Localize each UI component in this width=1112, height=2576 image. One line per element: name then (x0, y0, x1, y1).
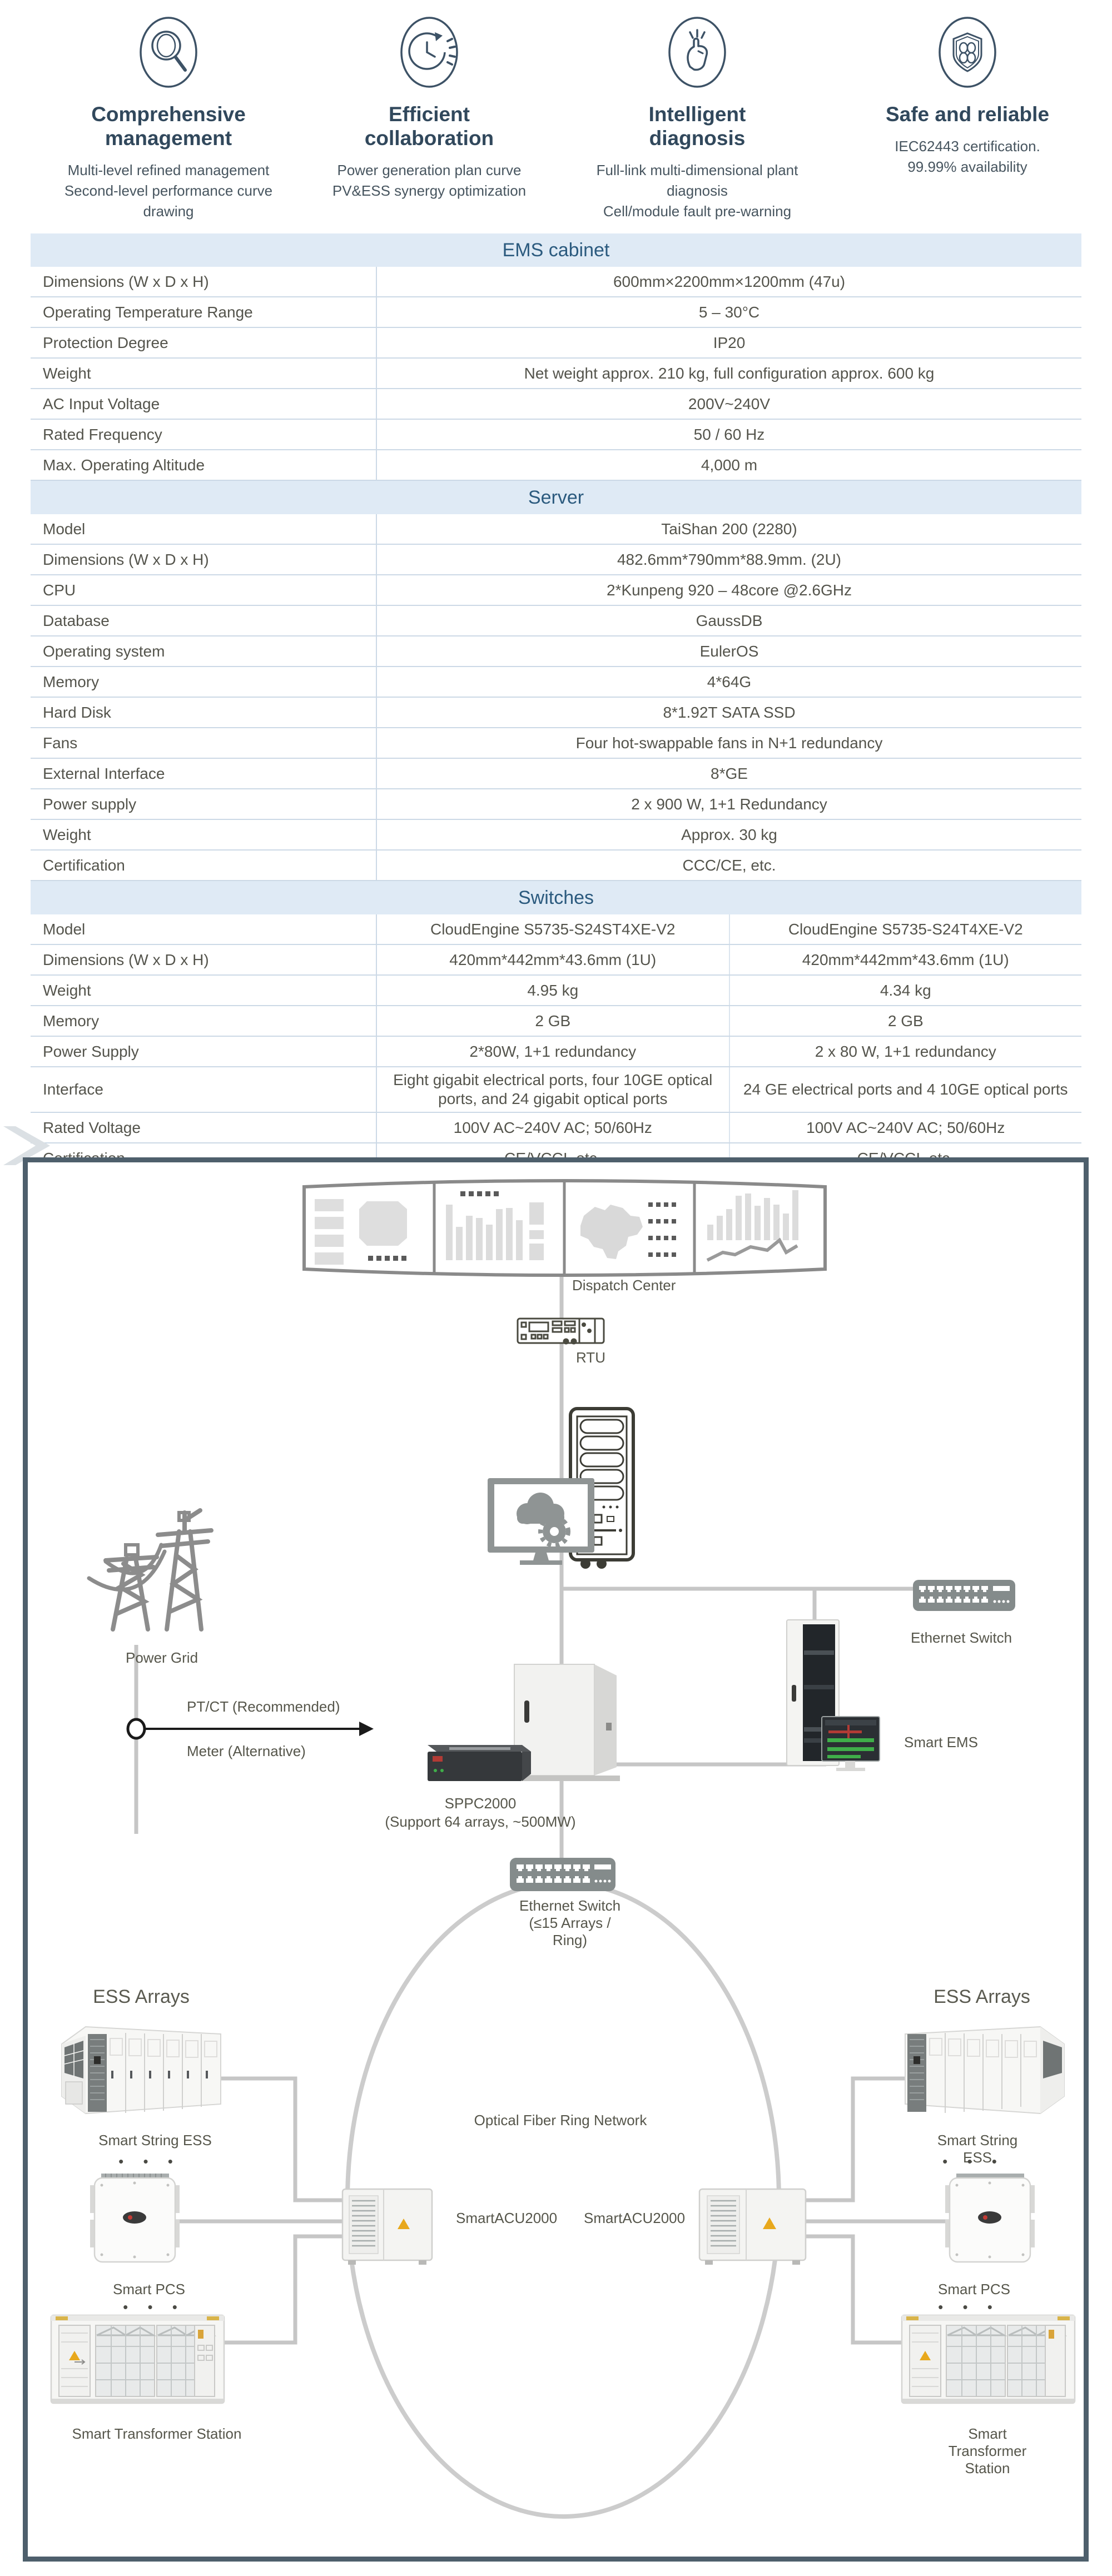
row-value: 200V~240V (377, 392, 1081, 416)
table-row: WeightApprox. 30 kg (31, 820, 1081, 851)
table-row: DatabaseGaussDB (31, 606, 1081, 636)
table-row: Memory4*64G (31, 667, 1081, 698)
table-row: ModelTaiShan 200 (2280) (31, 514, 1081, 545)
product-spec-page: Comprehensive management Multi-level ref… (0, 0, 1112, 2576)
feature-subtext: Multi-level refined management (38, 160, 299, 181)
row-value: CloudEngine S5735-S24T4XE-V2 (730, 918, 1082, 941)
dispatch-center-videowall (304, 1181, 825, 1275)
row-label: Operating Temperature Range (31, 297, 377, 327)
spec-table-ems-cabinet: EMS cabinetDimensions (W x D x H)600mm×2… (31, 233, 1081, 481)
row-value: 100V AC~240V AC; 50/60Hz (730, 1116, 1082, 1140)
row-value: CloudEngine S5735-S24ST4XE-V2 (377, 914, 730, 944)
row-value: TaiShan 200 (2280) (377, 518, 1081, 541)
table-row: Rated Frequency50 / 60 Hz (31, 420, 1081, 450)
row-value: 2 GB (377, 1006, 730, 1036)
label-sppc2000-detail: (Support 64 arrays, ~500MW) (385, 1813, 575, 1831)
row-value: 2*80W, 1+1 redundancy (377, 1037, 730, 1066)
feature-comprehensive-management: Comprehensive management Multi-level ref… (38, 12, 299, 222)
row-value: 2*Kunpeng 920 – 48core @2.6GHz (377, 579, 1081, 602)
row-value: EulerOS (377, 640, 1081, 663)
row-label: Rated Frequency (31, 420, 377, 449)
feature-subtext: 99.99% availability (837, 157, 1098, 177)
row-value: 2 GB (730, 1009, 1082, 1033)
table-row: Protection DegreeIP20 (31, 328, 1081, 359)
row-label: Model (31, 514, 377, 544)
row-label: Database (31, 606, 377, 635)
feature-subtext: IEC62443 certification. (837, 136, 1098, 157)
meter-tap-arrow (128, 1719, 374, 1738)
row-value: 420mm*442mm*43.6mm (1U) (377, 945, 730, 974)
label-ess-arrays-right: ESS Arrays (934, 1988, 1030, 2006)
smart-transformer-left (51, 2315, 224, 2403)
row-label: Fans (31, 728, 377, 758)
feature-subtext: Cell/module fault pre-warning (567, 201, 828, 222)
label-smart-pcs-right: Smart PCS (938, 2281, 1010, 2298)
connector-lines (136, 1271, 950, 2343)
shield-clover-icon (837, 12, 1098, 95)
table-row: CertificationCCC/CE, etc. (31, 851, 1081, 881)
row-value: 100V AC~240V AC; 50/60Hz (377, 1113, 730, 1142)
table-row: Max. Operating Altitude4,000 m (31, 450, 1081, 481)
clock-cycle-icon (299, 12, 560, 95)
row-value: 2 x 80 W, 1+1 redundancy (730, 1040, 1082, 1063)
feature-subtext: Power generation plan curve (299, 160, 560, 181)
row-label: Certification (31, 851, 377, 880)
label-meter: Meter (Alternative) (187, 1743, 306, 1760)
finger-snap-icon (567, 12, 828, 95)
row-value: 5 – 30°C (377, 301, 1081, 324)
ellipsis-left-top: • • • (118, 2153, 181, 2170)
magnifier-icon (38, 12, 299, 95)
table-section-header: Server (31, 481, 1081, 514)
sppc2000-controller-rack (428, 1745, 531, 1781)
row-value: 4.95 kg (377, 976, 730, 1005)
row-value: 24 GE electrical ports and 4 10GE optica… (730, 1078, 1082, 1101)
row-value: GaussDB (377, 609, 1081, 633)
label-sppc2000: SPPC2000 (445, 1795, 517, 1812)
row-label: Weight (31, 359, 377, 388)
row-label: Dimensions (W x D x H) (31, 945, 377, 974)
row-label: Hard Disk (31, 698, 377, 727)
row-label: Memory (31, 1006, 377, 1036)
row-value: 600mm×2200mm×1200mm (47u) (377, 270, 1081, 294)
row-label: Power Supply (31, 1037, 377, 1066)
table-row: Dimensions (W x D x H)600mm×2200mm×1200m… (31, 267, 1081, 297)
row-label: Protection Degree (31, 328, 377, 357)
table-row: ModelCloudEngine S5735-S24ST4XE-V2CloudE… (31, 914, 1081, 945)
row-label: Operating system (31, 636, 377, 666)
label-transformer-right: Smart Transformer Station (940, 2425, 1036, 2477)
feature-title: Efficient collaboration (299, 102, 560, 150)
label-power-grid: Power Grid (126, 1649, 198, 1667)
row-label: Interface (31, 1067, 377, 1112)
row-label: AC Input Voltage (31, 389, 377, 419)
label-rtu: RTU (576, 1349, 605, 1366)
table-row: Hard Disk8*1.92T SATA SSD (31, 698, 1081, 728)
row-label: Dimensions (W x D x H) (31, 545, 377, 574)
table-row: AC Input Voltage200V~240V (31, 389, 1081, 420)
row-value: 8*1.92T SATA SSD (377, 701, 1081, 724)
spec-tables: EMS cabinetDimensions (W x D x H)600mm×2… (31, 233, 1081, 1174)
row-value: 4,000 m (377, 454, 1081, 477)
row-value: Four hot-swappable fans in N+1 redundanc… (377, 732, 1081, 755)
table-row: CPU2*Kunpeng 920 – 48core @2.6GHz (31, 575, 1081, 606)
table-section-header: EMS cabinet (31, 233, 1081, 267)
table-row: Rated Voltage100V AC~240V AC; 50/60Hz100… (31, 1113, 1081, 1143)
label-ess-arrays-left: ESS Arrays (93, 1988, 190, 2006)
spec-table-switches: SwitchesModelCloudEngine S5735-S24ST4XE-… (31, 881, 1081, 1174)
table-row: Dimensions (W x D x H)420mm*442mm*43.6mm… (31, 945, 1081, 976)
table-row: External Interface8*GE (31, 759, 1081, 789)
label-smart-ems: Smart EMS (904, 1734, 978, 1751)
feature-subtext: Second-level performance curve drawing (38, 181, 299, 222)
row-label: Dimensions (W x D x H) (31, 267, 377, 296)
feature-title: Safe and reliable (837, 102, 1098, 126)
table-row: Power supply2 x 900 W, 1+1 Redundancy (31, 789, 1081, 820)
monitor-cloud-gear (488, 1478, 594, 1565)
row-label: Max. Operating Altitude (31, 450, 377, 480)
row-value: Approx. 30 kg (377, 823, 1081, 847)
feature-title: Comprehensive management (38, 102, 299, 150)
label-dispatch-center: Dispatch Center (572, 1277, 676, 1294)
smart-acu2000-left (342, 2189, 432, 2265)
feature-efficient-collaboration: Efficient collaboration Power generation… (299, 12, 560, 201)
table-row: Operating systemEulerOS (31, 636, 1081, 667)
row-value: 4.34 kg (730, 979, 1082, 1002)
row-label: Weight (31, 976, 377, 1005)
table-row: Weight4.95 kg4.34 kg (31, 976, 1081, 1006)
ethernet-switch-top (913, 1580, 1015, 1611)
smart-string-ess-right (905, 2027, 1064, 2113)
smart-pcs-right (945, 2174, 1035, 2262)
table-row: Dimensions (W x D x H)482.6mm*790mm*88.9… (31, 545, 1081, 575)
smart-transformer-right (902, 2315, 1075, 2403)
row-label: Memory (31, 667, 377, 697)
ellipsis-right-top: • • • (942, 2153, 1005, 2170)
table-row: Power Supply2*80W, 1+1 redundancy2 x 80 … (31, 1037, 1081, 1067)
row-value: Eight gigabit electrical ports, four 10G… (377, 1067, 730, 1112)
row-label: CPU (31, 575, 377, 605)
table-row: Operating Temperature Range5 – 30°C (31, 297, 1081, 328)
system-architecture-diagram: Dispatch Center RTU Power Grid PT/CT (Re… (23, 1157, 1089, 2562)
row-value: IP20 (377, 331, 1081, 355)
row-value: 2 x 900 W, 1+1 Redundancy (377, 793, 1081, 816)
row-label: Model (31, 914, 377, 944)
feature-intelligent-diagnosis: Intelligent diagnosis Full-link multi-di… (567, 12, 828, 222)
power-grid-towers (89, 1510, 211, 1629)
row-value: CCC/CE, etc. (377, 854, 1081, 877)
ethernet-switch-mid (510, 1858, 615, 1891)
ellipsis-left-bottom: • • • (123, 2299, 185, 2316)
table-row: WeightNet weight approx. 210 kg, full co… (31, 359, 1081, 389)
table-row: InterfaceEight gigabit electrical ports,… (31, 1067, 1081, 1113)
label-smart-acu-left: SmartACU2000 (456, 2210, 557, 2227)
table-section-header: Switches (31, 881, 1081, 914)
row-label: Power supply (31, 789, 377, 819)
label-transformer-left: Smart Transformer Station (72, 2425, 242, 2443)
feature-subtext: Full-link multi-dimensional plant diagno… (567, 160, 828, 201)
ellipsis-right-bottom: • • • (938, 2299, 1000, 2316)
label-ethernet-switch-top: Ethernet Switch (911, 1629, 1012, 1647)
feature-title: Intelligent diagnosis (567, 102, 828, 150)
smart-string-ess-left (62, 2027, 221, 2113)
spec-table-server: ServerModelTaiShan 200 (2280)Dimensions … (31, 481, 1081, 881)
label-smart-acu-right: SmartACU2000 (584, 2210, 685, 2227)
row-label: External Interface (31, 759, 377, 788)
table-row: Memory2 GB2 GB (31, 1006, 1081, 1037)
row-value: 482.6mm*790mm*88.9mm. (2U) (377, 548, 1081, 571)
label-ethernet-switch-mid: Ethernet Switch (≤15 Arrays / Ring) (519, 1897, 620, 1949)
row-value: Net weight approx. 210 kg, full configur… (377, 362, 1081, 385)
label-smart-pcs-left: Smart PCS (113, 2281, 185, 2298)
row-value: 50 / 60 Hz (377, 423, 1081, 446)
row-label: Rated Voltage (31, 1113, 377, 1142)
feature-subtext: PV&ESS synergy optimization (299, 181, 560, 201)
label-ptct: PT/CT (Recommended) (187, 1698, 340, 1715)
smart-pcs-left (90, 2174, 180, 2262)
row-label: Weight (31, 820, 377, 849)
label-ring-network: Optical Fiber Ring Network (474, 2112, 647, 2129)
table-row: FansFour hot-swappable fans in N+1 redun… (31, 728, 1081, 759)
rtu-device (518, 1319, 604, 1344)
feature-safe-reliable: Safe and reliable IEC62443 certification… (837, 12, 1098, 177)
label-string-ess-left: Smart String ESS (98, 2132, 212, 2149)
row-value: 4*64G (377, 670, 1081, 694)
row-value: 8*GE (377, 762, 1081, 785)
smart-acu2000-right (699, 2189, 806, 2265)
row-value: 420mm*442mm*43.6mm (1U) (730, 948, 1082, 972)
